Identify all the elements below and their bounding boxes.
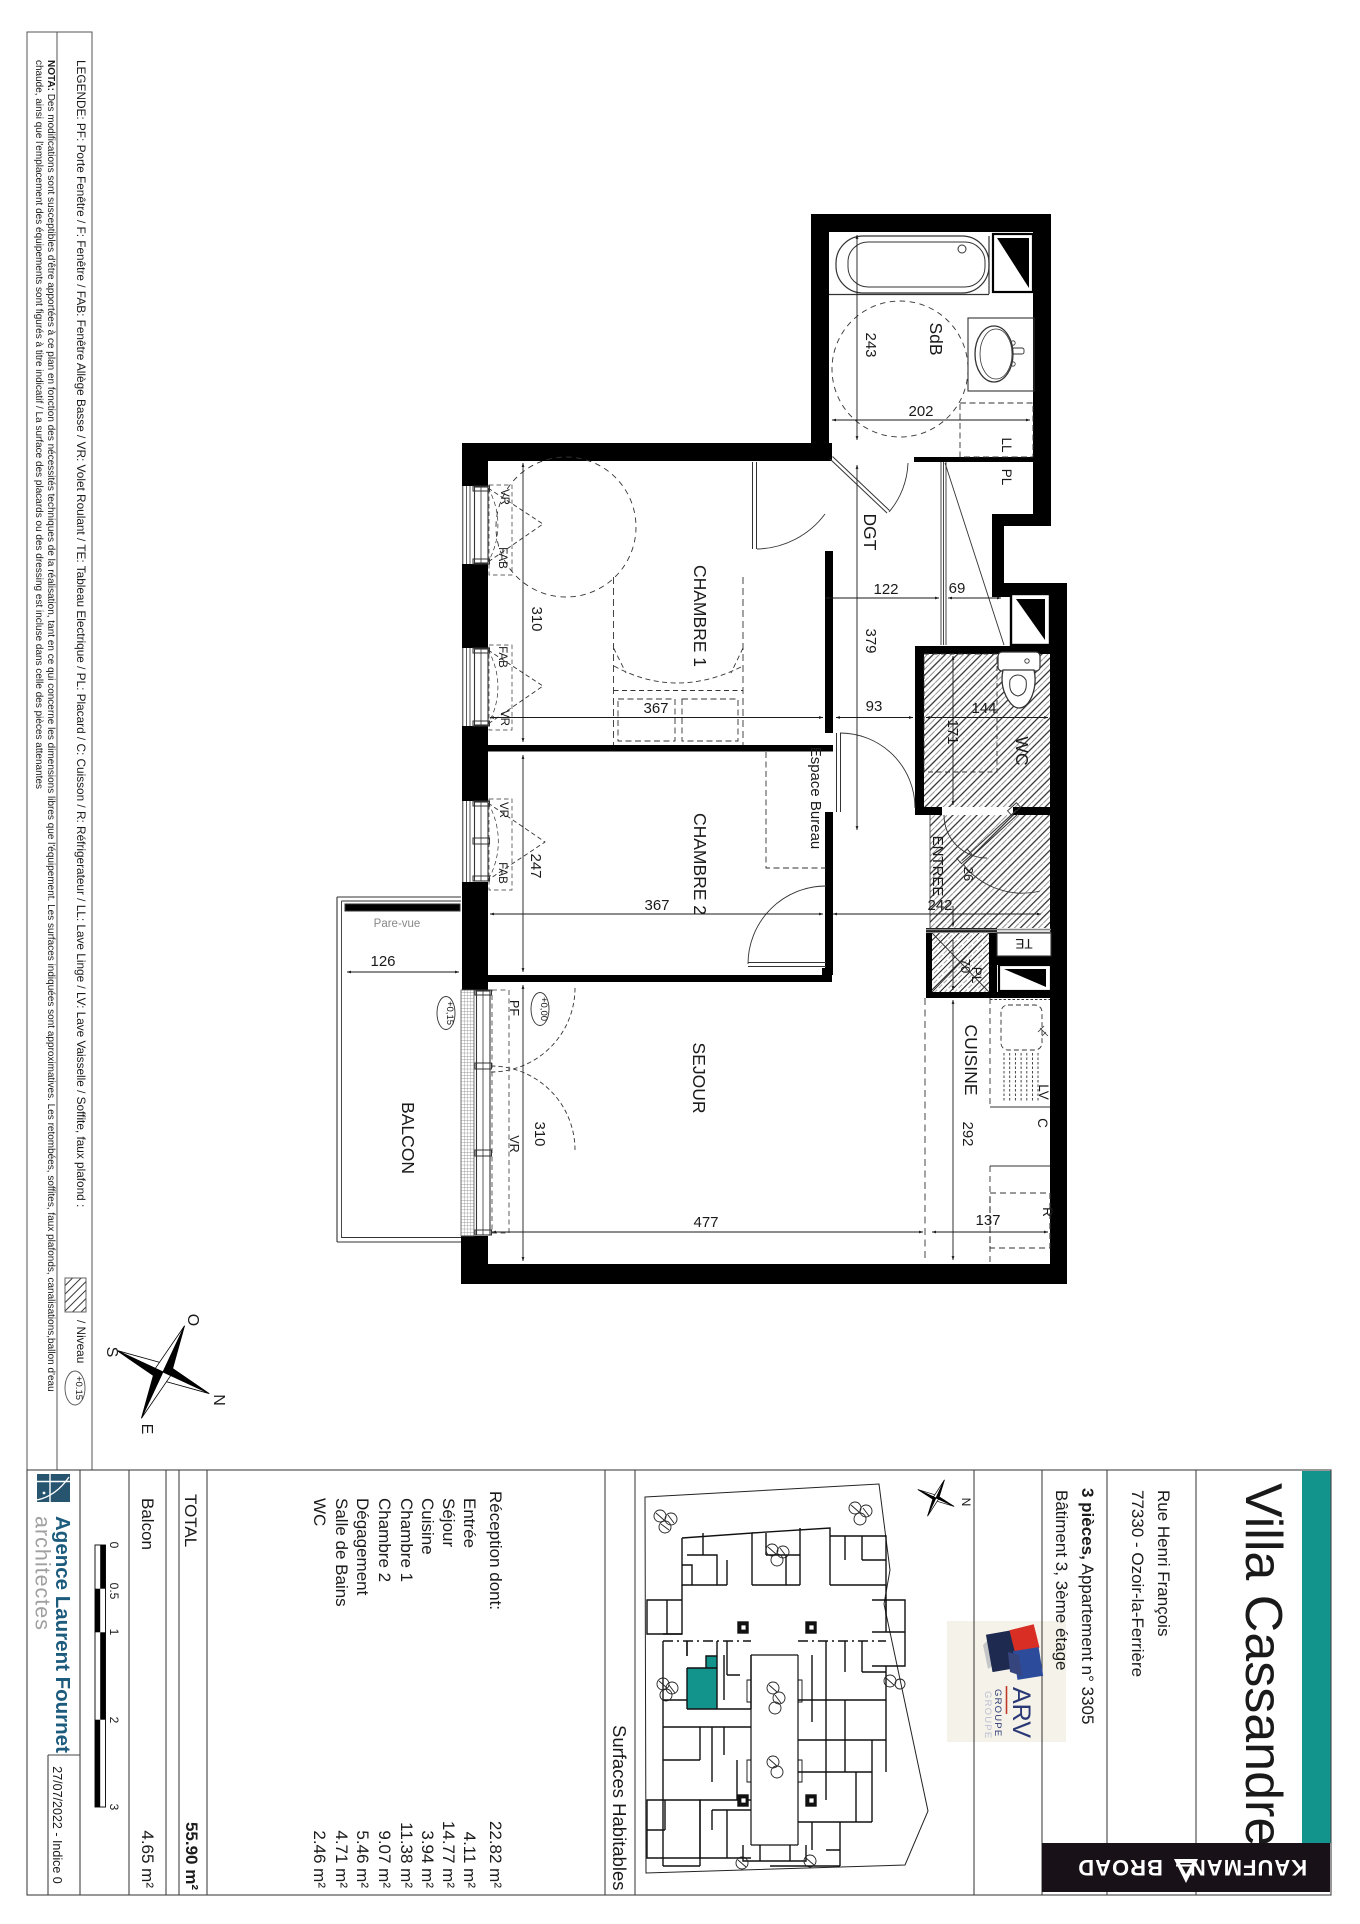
svg-text:BROAD: BROAD (1077, 1855, 1163, 1880)
svg-text:GROUPE: GROUPE (982, 1691, 993, 1739)
svg-text:Dégagement: Dégagement (353, 1498, 372, 1596)
svg-text:PF: PF (507, 1000, 521, 1016)
svg-text:ARV: ARV (1007, 1687, 1035, 1738)
svg-text:Chambre 1: Chambre 1 (397, 1498, 416, 1582)
svg-text:1: 1 (107, 1629, 121, 1636)
svg-text:126: 126 (370, 953, 395, 970)
svg-text:310: 310 (528, 606, 545, 631)
svg-text:243: 243 (862, 332, 879, 357)
svg-text:VR: VR (497, 802, 509, 818)
svg-text:122: 122 (873, 581, 898, 598)
svg-text:VR: VR (498, 710, 510, 726)
svg-text:+0.15: +0.15 (73, 1376, 84, 1400)
svg-text:171: 171 (944, 719, 961, 744)
svg-text:CUISINE: CUISINE (961, 1025, 981, 1096)
svg-text:WC: WC (1012, 736, 1032, 765)
svg-text:S: S (103, 1347, 120, 1358)
svg-text:14.77 m²: 14.77 m² (439, 1821, 458, 1888)
svg-text:4.71 m²: 4.71 m² (332, 1830, 351, 1888)
svg-text:310: 310 (531, 1121, 548, 1146)
svg-text:R: R (1040, 1207, 1055, 1217)
svg-text:BALCON: BALCON (398, 1102, 418, 1174)
svg-text:SdB: SdB (926, 322, 946, 355)
svg-text:TOTAL: TOTAL (181, 1494, 200, 1547)
svg-text:367: 367 (643, 700, 668, 717)
svg-text:Séjour: Séjour (439, 1498, 458, 1547)
svg-text:2.46 m²: 2.46 m² (310, 1830, 329, 1888)
svg-text:26: 26 (961, 867, 976, 881)
svg-text:TE: TE (1015, 936, 1032, 951)
svg-text:LEGENDE: PF: Porte Fenêtre / F: LEGENDE: PF: Porte Fenêtre / F: Fenêtre … (74, 60, 88, 1207)
svg-text:Surfaces Habitables: Surfaces Habitables (609, 1725, 630, 1891)
svg-text:4.65 m²: 4.65 m² (138, 1830, 157, 1888)
svg-text:Bâtiment 3, 3ème étage: Bâtiment 3, 3ème étage (1052, 1490, 1071, 1671)
svg-text:9.07 m²: 9.07 m² (375, 1830, 394, 1888)
svg-text:N: N (210, 1394, 227, 1406)
svg-text:Cuisine: Cuisine (418, 1498, 437, 1555)
svg-text:367: 367 (644, 897, 669, 914)
svg-text:Réception dont:: Réception dont: (486, 1491, 505, 1610)
svg-text:DGT: DGT (860, 514, 880, 551)
svg-text:N: N (959, 1498, 973, 1507)
svg-text:Balcon: Balcon (138, 1498, 157, 1550)
svg-text:Villa Cassandre: Villa Cassandre (1234, 1483, 1292, 1846)
svg-text:144: 144 (971, 700, 996, 717)
svg-text:chaude, ainsi que l'emplacemen: chaude, ainsi que l'emplacement des équi… (33, 60, 44, 789)
svg-text:PL: PL (969, 967, 984, 984)
svg-text:22.82 m²: 22.82 m² (486, 1821, 505, 1888)
svg-text:NOTA: Des modifications sont: NOTA: Des modifications sont susceptible… (45, 60, 56, 1392)
svg-text:379: 379 (862, 628, 879, 653)
svg-text:93: 93 (866, 698, 883, 715)
svg-text:Espace Bureau: Espace Bureau (807, 747, 824, 850)
svg-text:/ Niveau: / Niveau (74, 1320, 88, 1363)
svg-text:27/07/2022 - Indice 0: 27/07/2022 - Indice 0 (50, 1766, 64, 1883)
svg-text:3: 3 (107, 1804, 121, 1811)
svg-text:CHAMBRE 1: CHAMBRE 1 (690, 565, 710, 667)
svg-text:SEJOUR: SEJOUR (689, 1043, 709, 1114)
svg-text:4.11 m²: 4.11 m² (460, 1832, 479, 1889)
svg-text:0: 0 (107, 1542, 121, 1549)
svg-text:FAB: FAB (496, 646, 508, 668)
svg-text:3 pièces, Appartement n° 3305: 3 pièces, Appartement n° 3305 (1078, 1488, 1097, 1724)
svg-text:LL: LL (999, 437, 1014, 453)
svg-text:Rue Henri François: Rue Henri François (1154, 1490, 1173, 1636)
svg-text:Salle de Bains: Salle de Bains (332, 1498, 351, 1607)
svg-text:+0,00: +0,00 (538, 997, 549, 1021)
svg-text:69: 69 (949, 580, 966, 597)
svg-text:WC: WC (310, 1498, 329, 1526)
svg-text:0.5: 0.5 (107, 1583, 121, 1600)
svg-text:55.90 m²: 55.90 m² (182, 1822, 201, 1890)
svg-text:LV: LV (1036, 1084, 1051, 1100)
svg-text:FAB: FAB (496, 862, 508, 884)
svg-text:O: O (184, 1314, 201, 1326)
svg-text:242: 242 (927, 897, 952, 914)
svg-text:PL: PL (999, 469, 1014, 486)
svg-text:CHAMBRE 2: CHAMBRE 2 (690, 813, 710, 915)
svg-text:247: 247 (527, 853, 544, 878)
svg-text:292: 292 (959, 1121, 976, 1146)
svg-text:11.38 m²: 11.38 m² (397, 1822, 416, 1888)
svg-text:ENTREE: ENTREE (929, 836, 946, 897)
svg-text:Pare-vue: Pare-vue (374, 918, 421, 930)
svg-text:+0,15: +0,15 (444, 1001, 455, 1025)
svg-text:Entrée: Entrée (460, 1498, 479, 1548)
svg-text:2: 2 (107, 1717, 121, 1724)
svg-text:3.94 m²: 3.94 m² (418, 1830, 437, 1888)
svg-text:VR: VR (507, 1135, 521, 1152)
svg-text:E: E (138, 1424, 155, 1435)
svg-text:FAB: FAB (496, 547, 508, 569)
svg-text:137: 137 (975, 1212, 1000, 1229)
svg-text:5.46 m²: 5.46 m² (353, 1830, 372, 1888)
svg-text:77330 - Ozoir-la-Ferrière: 77330 - Ozoir-la-Ferrière (1128, 1490, 1147, 1677)
svg-text:Chambre 2: Chambre 2 (375, 1498, 394, 1582)
svg-text:KAUFMAN: KAUFMAN (1189, 1855, 1307, 1880)
svg-text:202: 202 (908, 403, 933, 420)
svg-text:C: C (1035, 1118, 1050, 1128)
svg-text:VR: VR (498, 489, 510, 505)
svg-text:477: 477 (693, 1214, 718, 1231)
svg-text:architectes: architectes (31, 1516, 55, 1631)
